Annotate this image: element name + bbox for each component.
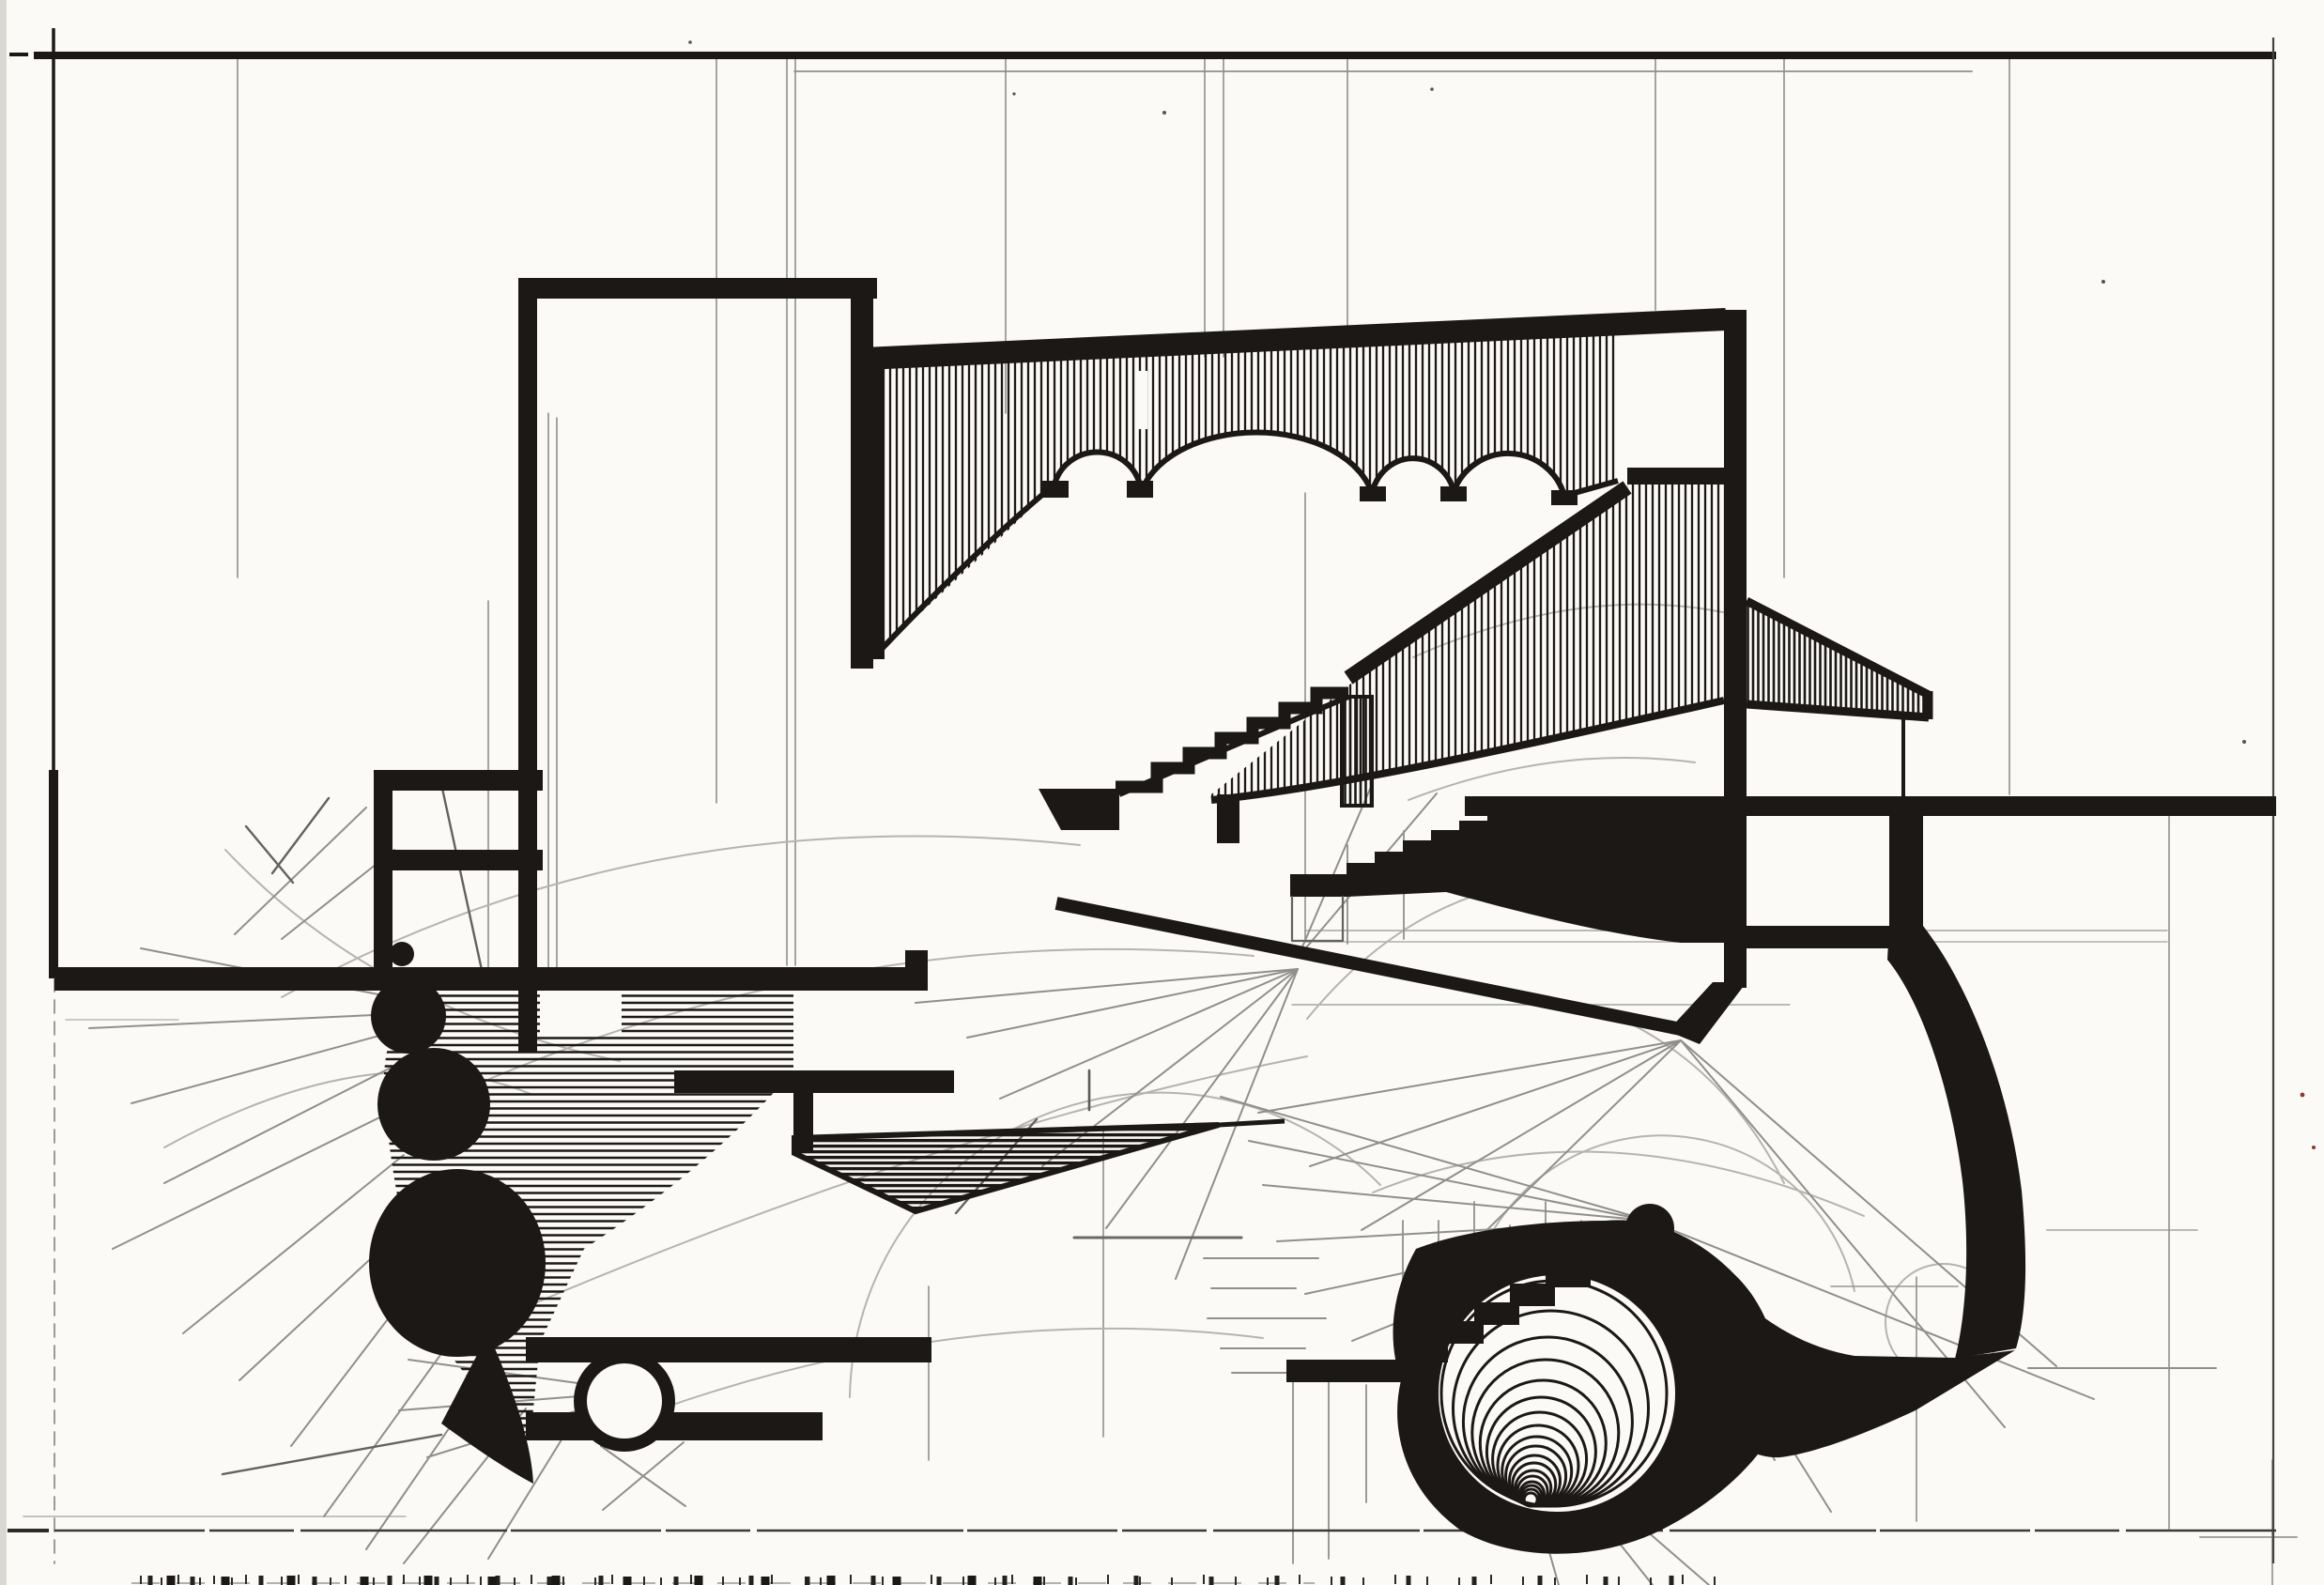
main-staircase-mound bbox=[1290, 797, 1724, 943]
triangle-hatch-field bbox=[1211, 474, 1724, 800]
apex-plateau bbox=[1627, 468, 1726, 485]
top-border bbox=[34, 52, 2276, 59]
drawing-sheet bbox=[0, 0, 2324, 1585]
ladder-rung-lower bbox=[374, 850, 543, 870]
s-curve-return-band bbox=[1887, 926, 2025, 1359]
tall-room-top-wall bbox=[518, 278, 877, 299]
ladder-left-rail bbox=[374, 770, 392, 978]
short-horizontal-line-lower bbox=[1747, 926, 1893, 948]
left-plan-building bbox=[54, 278, 928, 1052]
ground-datum-line bbox=[54, 967, 928, 991]
tall-right-wall bbox=[1724, 310, 1747, 988]
vault-cusp-feet bbox=[1042, 481, 1578, 505]
hatched-pier bbox=[1342, 697, 1372, 806]
stepped-triangular-roof bbox=[1039, 468, 1929, 843]
tall-room-left-wall bbox=[518, 278, 537, 1052]
bottom-tick-ruler bbox=[131, 1575, 1715, 1585]
connector-block bbox=[1889, 811, 1923, 943]
roller-ring-inner bbox=[587, 1363, 662, 1439]
lower-left-ground-mass bbox=[369, 942, 1285, 1484]
lower-rail-bar bbox=[526, 1412, 823, 1440]
stair-mound-body bbox=[1290, 797, 1724, 943]
ground-line-end-cap bbox=[905, 950, 928, 969]
upper-rail-bar bbox=[526, 1337, 931, 1362]
vault-white-slit bbox=[1137, 371, 1147, 429]
hatched-dart bbox=[794, 1125, 1219, 1211]
left-border-thick bbox=[49, 770, 58, 978]
ladder-rung-upper bbox=[374, 770, 543, 791]
stair-foot-ray-fan bbox=[916, 787, 1437, 1279]
soffit-tab bbox=[1217, 794, 1239, 843]
outer-frame-border bbox=[8, 28, 2276, 1563]
flag-tip bbox=[1039, 789, 1119, 830]
vault-left-springer-wall bbox=[864, 349, 885, 659]
scan-edge-shadow bbox=[0, 0, 7, 1585]
step-wall-upper bbox=[674, 1070, 954, 1093]
architectural-sketch-canvas bbox=[0, 0, 2324, 1585]
shell-vortex-assembly bbox=[1286, 1204, 2015, 1554]
dart-tip-line bbox=[1219, 1121, 1285, 1125]
